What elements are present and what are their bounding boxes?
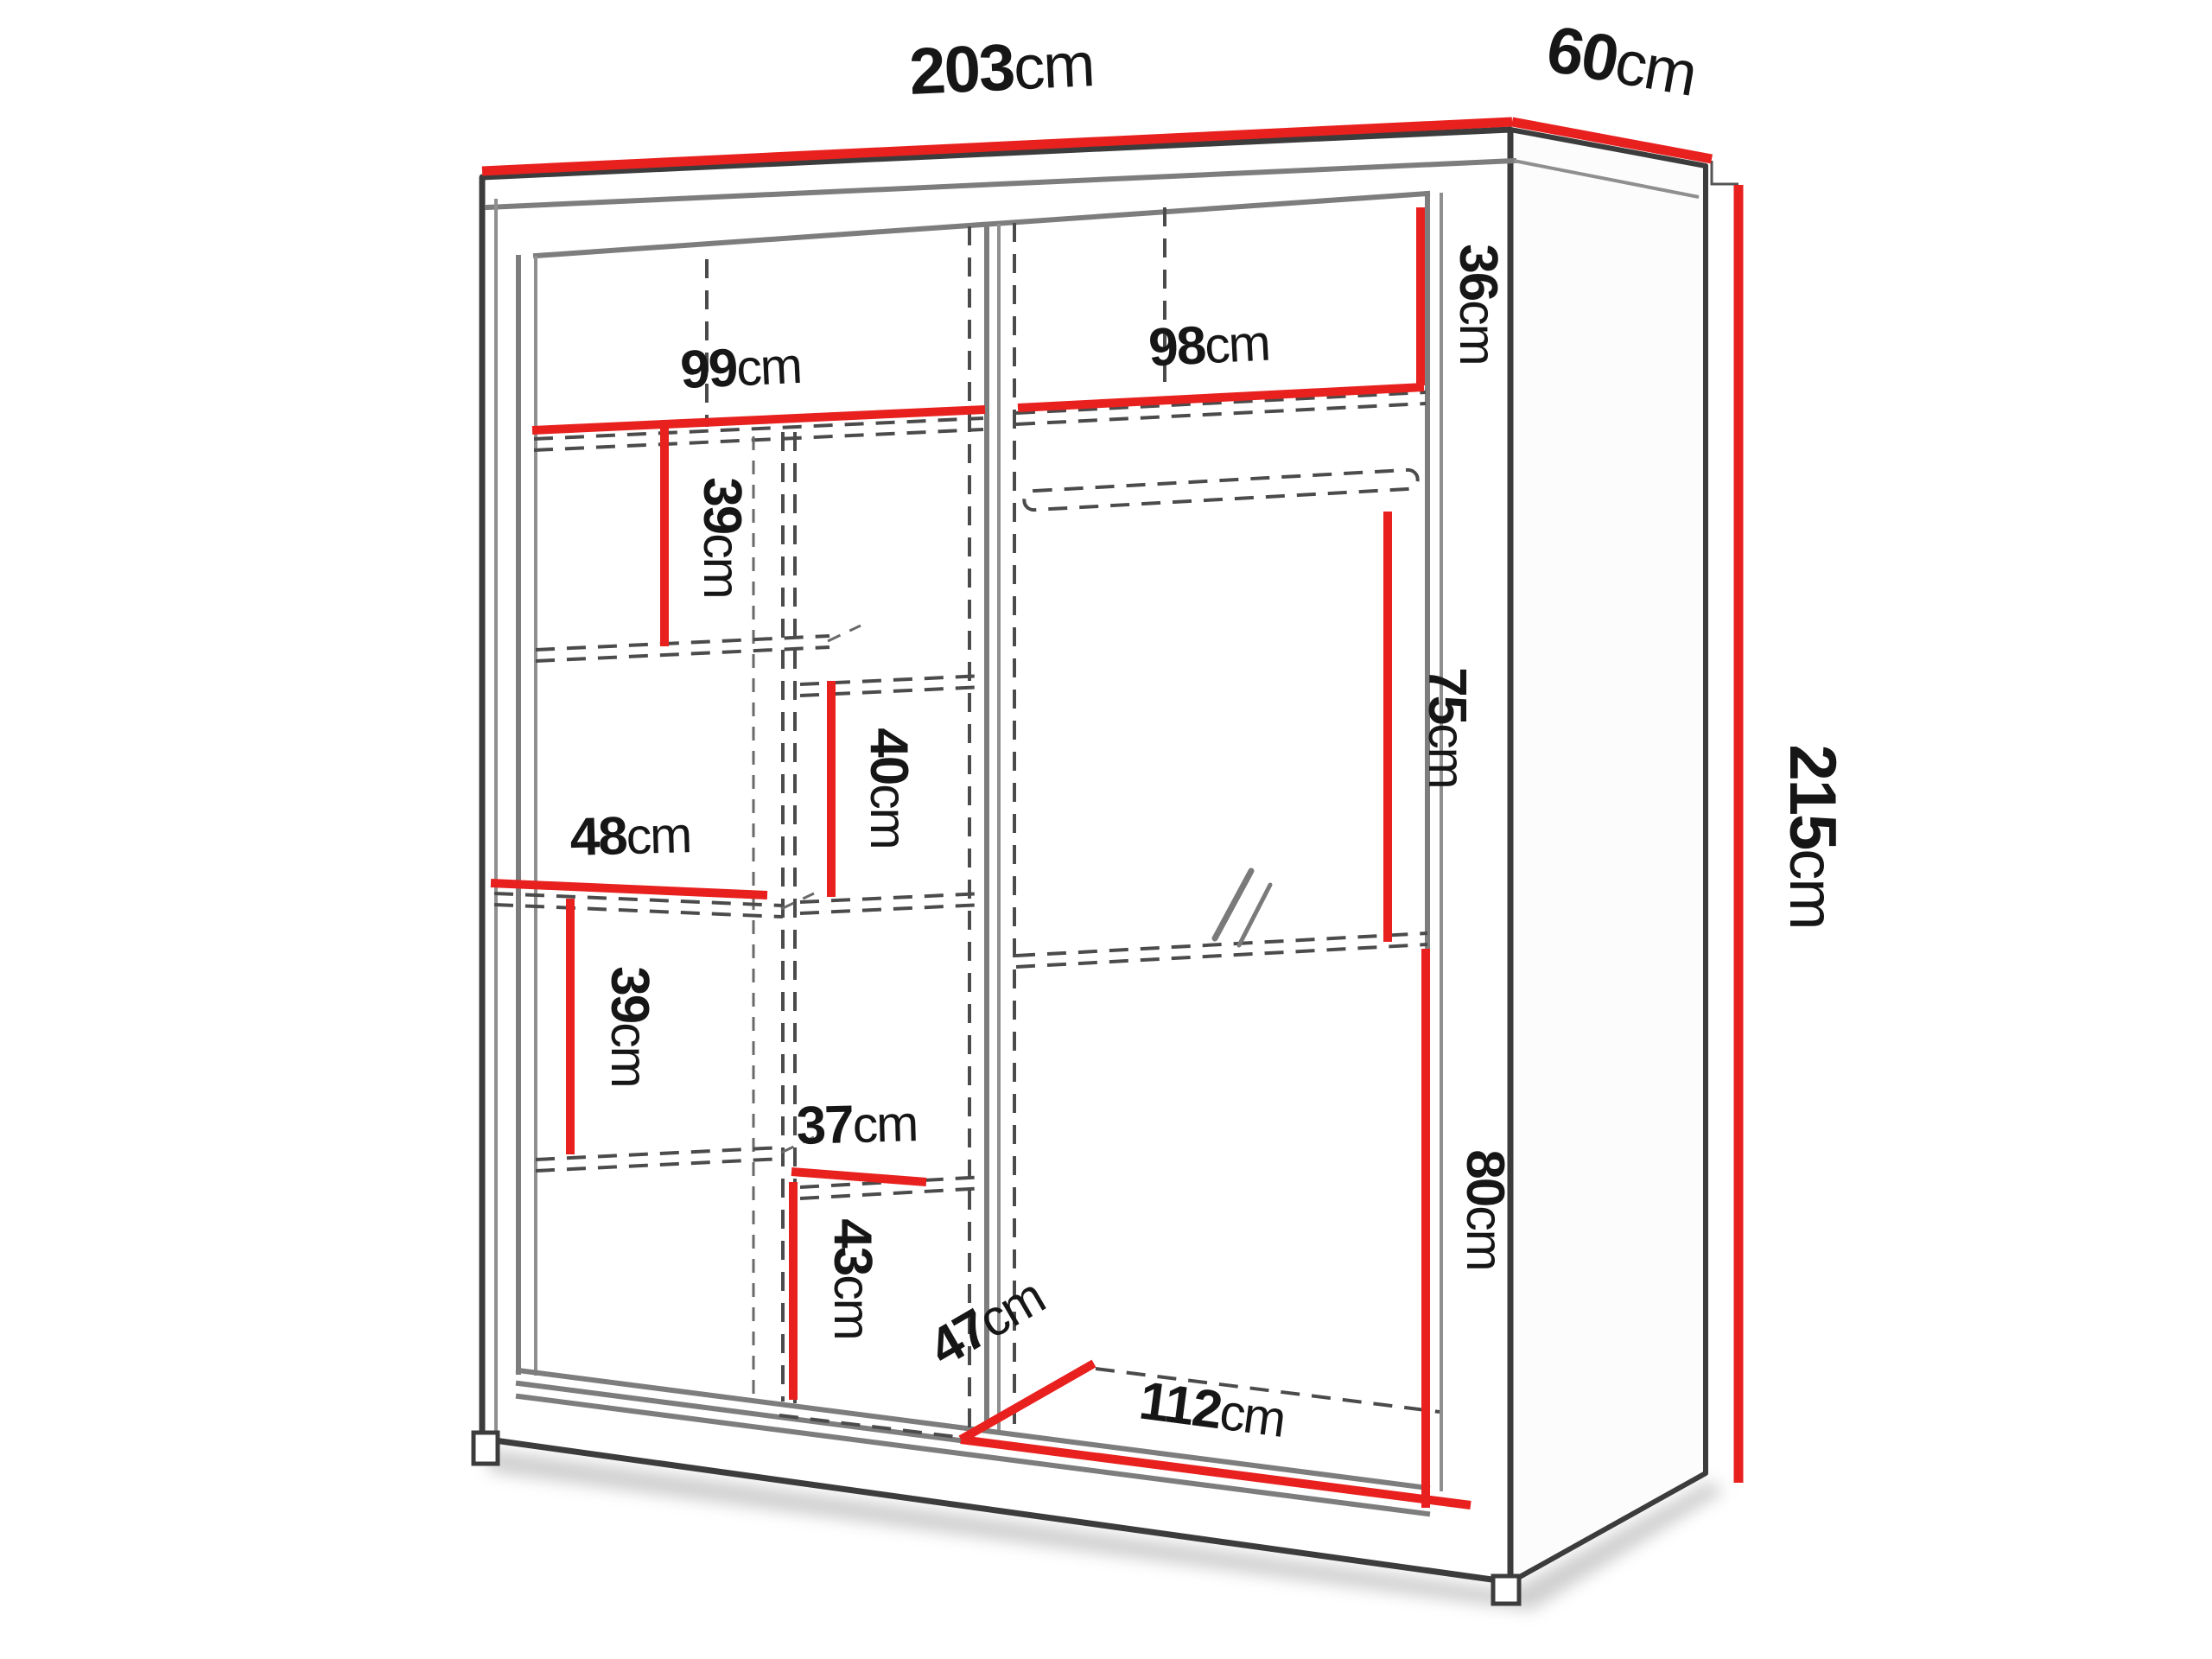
dim-right-top-shelf-label: 98cm (1147, 313, 1271, 378)
dim-left-upper-cubby-label: 39cm (692, 477, 752, 597)
wardrobe-dimension-diagram: 203cm 60cm 215cm 99cm 98cm 36cm 39cm (0, 0, 2212, 1659)
dim-overall-height: 215cm (1738, 185, 1849, 1483)
dim-center-bottom-cubby-label: 43cm (823, 1218, 882, 1338)
dim-right-lower-section-label: 80cm (1455, 1149, 1515, 1269)
dim-top-right-cubby-label: 36cm (1448, 244, 1508, 364)
dim-center-cubby-label: 40cm (859, 728, 918, 848)
dim-left-shelf-label: 48cm (569, 804, 691, 868)
dim-left-lower-cubby-label: 39cm (600, 966, 659, 1086)
wardrobe-body (474, 130, 1738, 1604)
depth-height-step (1712, 161, 1738, 184)
dim-overall-height-label: 215cm (1776, 744, 1849, 928)
front-right-foot (1493, 1576, 1519, 1604)
dim-hanging-space-label: 75cm (1417, 667, 1477, 787)
dim-overall-width-label: 203cm (907, 27, 1095, 109)
front-left-foot (474, 1433, 498, 1464)
dim-left-top-shelf-label: 99cm (679, 335, 802, 400)
dim-overall-depth-label: 60cm (1541, 12, 1701, 111)
side-panel (1510, 130, 1706, 1582)
dim-center-shelf-label: 37cm (796, 1093, 918, 1156)
